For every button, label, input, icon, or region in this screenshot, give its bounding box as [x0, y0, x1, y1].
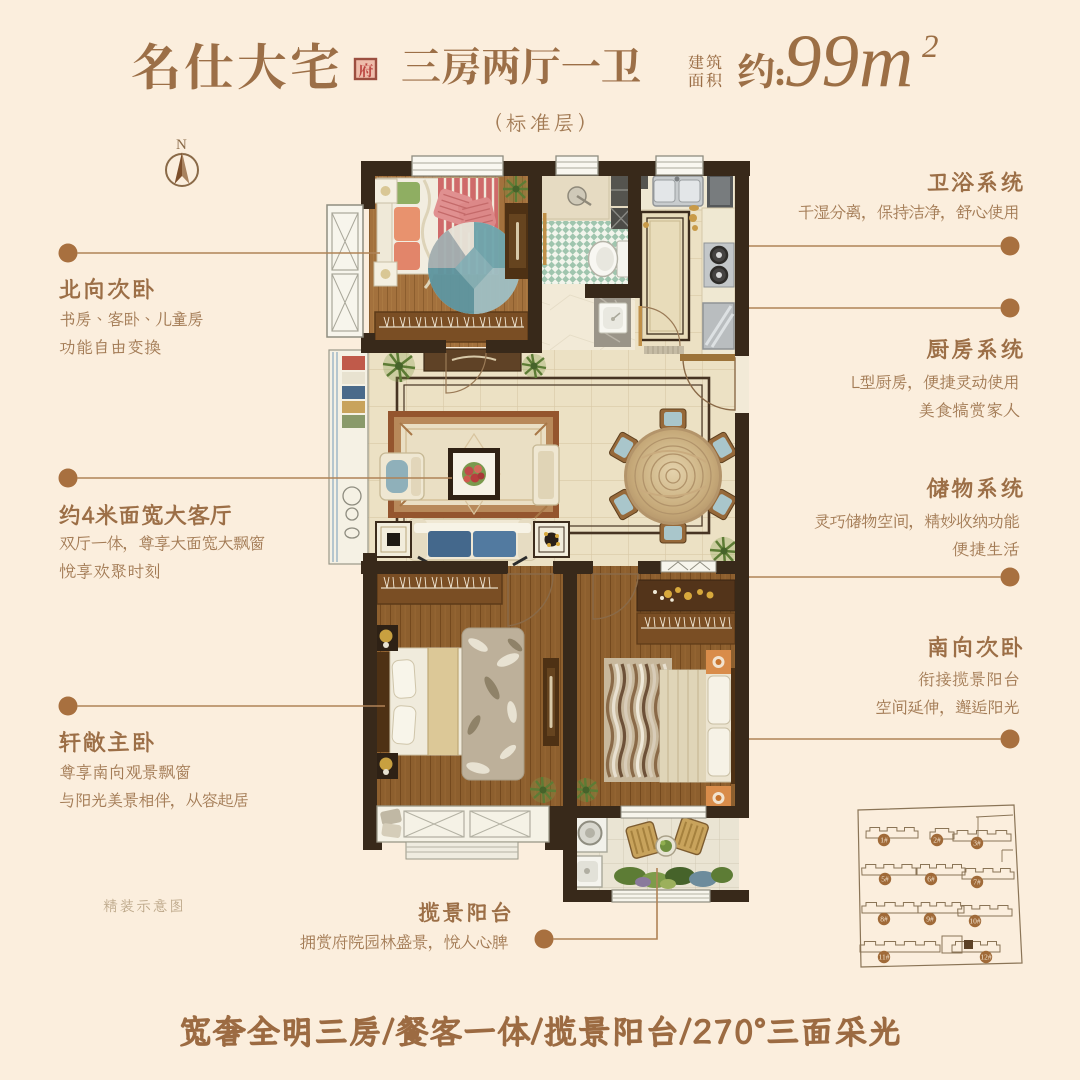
svg-text:3#: 3# — [973, 839, 981, 848]
svg-text:9#: 9# — [926, 915, 934, 924]
svg-text:1#: 1# — [880, 836, 888, 845]
svg-text:2#: 2# — [933, 836, 941, 845]
svg-text:2: 2 — [922, 29, 939, 65]
svg-text:99m: 99m — [784, 20, 913, 103]
svg-text:8#: 8# — [880, 915, 888, 924]
svg-text:N: N — [176, 137, 187, 153]
svg-text:11#: 11# — [879, 953, 890, 962]
svg-text:6#: 6# — [927, 875, 935, 884]
svg-text:5#: 5# — [881, 875, 889, 884]
svg-text:12#: 12# — [980, 953, 992, 962]
svg-text:10#: 10# — [969, 917, 981, 926]
svg-text:7#: 7# — [973, 878, 981, 887]
